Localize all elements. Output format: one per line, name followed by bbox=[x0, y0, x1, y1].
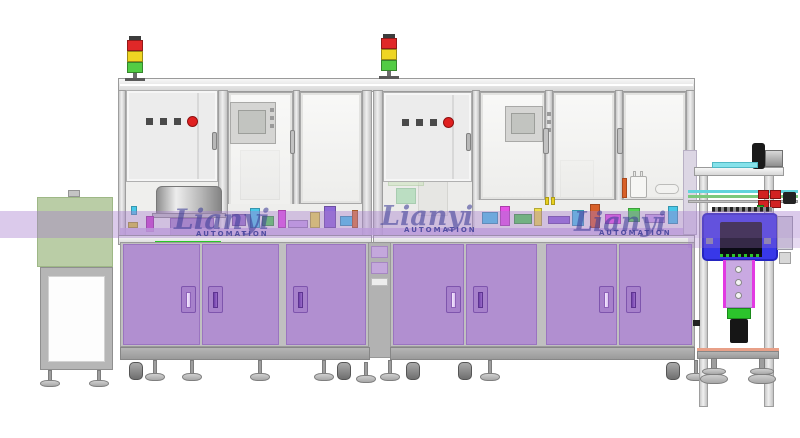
module1-window-3 bbox=[300, 92, 362, 204]
leveling-foot bbox=[314, 373, 334, 381]
door-handle[interactable] bbox=[466, 133, 471, 151]
door-handle[interactable] bbox=[617, 128, 623, 154]
conveyor-band-overlay-right bbox=[688, 238, 800, 248]
foot-stem bbox=[488, 360, 492, 374]
green-dashes bbox=[720, 254, 762, 257]
panel-button-1[interactable] bbox=[146, 118, 153, 125]
infeed-knob bbox=[68, 190, 80, 197]
emergency-stop-button[interactable] bbox=[187, 116, 198, 127]
gantry-beam bbox=[694, 167, 784, 176]
middle-bay-vent bbox=[371, 278, 388, 286]
adjust-knob[interactable] bbox=[783, 192, 796, 204]
leveling-foot bbox=[700, 374, 728, 384]
signal-tower-2 bbox=[377, 34, 403, 80]
control-panel-2 bbox=[383, 92, 472, 182]
hmi-screen bbox=[511, 113, 535, 134]
linear-rail-gray bbox=[688, 200, 798, 203]
camera-green-mount bbox=[727, 308, 751, 319]
tower-base bbox=[125, 78, 145, 81]
panel-button-3[interactable] bbox=[174, 118, 181, 125]
red-clamp bbox=[770, 190, 781, 199]
capsule-part bbox=[655, 184, 679, 194]
linear-rail-cyan bbox=[688, 190, 798, 193]
panel-seam bbox=[197, 93, 199, 179]
leveling-foot bbox=[748, 374, 776, 384]
module1-base bbox=[120, 347, 370, 360]
watermark-subtitle: AUTOMATION bbox=[599, 230, 672, 237]
caster-wheel bbox=[129, 362, 143, 380]
door-handle[interactable] bbox=[290, 130, 295, 154]
cabinet-handle[interactable] bbox=[599, 286, 614, 313]
control-panel-1 bbox=[126, 90, 218, 182]
signal-red-light bbox=[127, 40, 143, 51]
panel-button-2[interactable] bbox=[416, 119, 423, 126]
module2-window-2 bbox=[553, 92, 615, 200]
signal-tower-1 bbox=[123, 36, 149, 82]
leveling-foot bbox=[480, 373, 500, 381]
signal-green-light bbox=[381, 60, 397, 71]
hmi-screen bbox=[238, 110, 266, 134]
machine-line-rendering: Lianyi AUTOMATION Lianyi AUTOMATION Lian… bbox=[0, 0, 800, 438]
panel-button-1[interactable] bbox=[402, 119, 409, 126]
foot-stem bbox=[322, 360, 326, 374]
foot-stem bbox=[153, 360, 157, 374]
column-hole bbox=[735, 292, 742, 299]
column-hole bbox=[735, 279, 742, 286]
bottle-neck bbox=[640, 171, 643, 177]
middle-bay-panel bbox=[371, 246, 388, 258]
camera-lens bbox=[730, 319, 748, 343]
leveling-foot bbox=[182, 373, 202, 381]
red-clamp bbox=[758, 190, 769, 199]
reagent-bottle bbox=[630, 176, 647, 198]
cabinet-handle[interactable] bbox=[473, 286, 488, 313]
panel-button-3[interactable] bbox=[430, 119, 437, 126]
cabinet-handle[interactable] bbox=[446, 286, 461, 313]
cabinet-handle[interactable] bbox=[626, 286, 641, 313]
glass-plate bbox=[712, 162, 758, 168]
leveling-foot bbox=[380, 373, 400, 381]
leveling-foot bbox=[40, 380, 60, 387]
orange-tube bbox=[622, 178, 627, 198]
motor-body bbox=[765, 150, 783, 167]
station-base bbox=[697, 351, 779, 359]
tower-base bbox=[379, 76, 399, 79]
signal-red-light bbox=[381, 38, 397, 49]
door-handle[interactable] bbox=[212, 132, 217, 150]
cabinet-handle[interactable] bbox=[181, 286, 196, 313]
leveling-foot bbox=[250, 373, 270, 381]
panel-seam bbox=[452, 95, 454, 179]
vision-station bbox=[680, 120, 800, 400]
column-edge bbox=[723, 260, 726, 308]
cabinet-handle[interactable] bbox=[293, 286, 308, 313]
foot-stem bbox=[364, 362, 368, 376]
foot-stem bbox=[258, 360, 262, 374]
signal-green-light bbox=[127, 62, 143, 73]
infeed-cabinet-panel bbox=[48, 276, 105, 362]
emergency-stop-button[interactable] bbox=[443, 117, 454, 128]
middle-bay-panel bbox=[371, 262, 388, 274]
side-bracket-box bbox=[779, 252, 791, 264]
signal-yellow-light bbox=[127, 51, 143, 62]
column-edge bbox=[752, 260, 755, 308]
post-knob bbox=[693, 320, 700, 326]
caster-wheel bbox=[458, 362, 472, 380]
bottle-neck bbox=[633, 171, 636, 177]
middle-bay bbox=[368, 242, 392, 358]
foot-stem bbox=[190, 360, 194, 374]
caster-wheel bbox=[666, 362, 680, 380]
caster-wheel bbox=[337, 362, 351, 380]
door-handle[interactable] bbox=[543, 128, 549, 154]
signal-yellow-light bbox=[381, 49, 397, 60]
linear-rail-green bbox=[688, 195, 798, 198]
column-hole bbox=[735, 266, 742, 273]
hmi-buttons bbox=[270, 108, 274, 112]
watermark-subtitle: AUTOMATION bbox=[196, 231, 269, 238]
cabinet-handle[interactable] bbox=[208, 286, 223, 313]
leveling-foot bbox=[356, 375, 376, 383]
leveling-foot bbox=[89, 380, 109, 387]
foot-stem bbox=[388, 360, 392, 374]
panel-button-2[interactable] bbox=[160, 118, 167, 125]
module-top-beam-line bbox=[120, 84, 693, 86]
leveling-foot bbox=[145, 373, 165, 381]
module2-base bbox=[390, 347, 695, 360]
watermark-subtitle: AUTOMATION bbox=[404, 227, 477, 234]
hmi-buttons bbox=[547, 112, 551, 116]
equipment-block bbox=[551, 197, 555, 205]
equipment-block bbox=[545, 197, 549, 205]
caster-wheel bbox=[406, 362, 420, 380]
